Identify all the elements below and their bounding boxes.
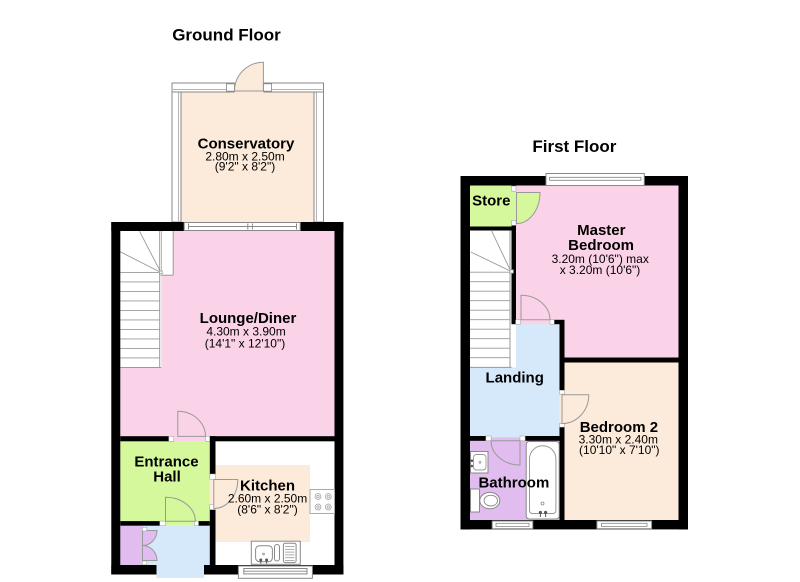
svg-text:(10'10" x 7'10"): (10'10" x 7'10") [579,443,659,457]
svg-text:(14'1" x 12'10"): (14'1" x 12'10") [205,336,285,350]
svg-text:First Floor: First Floor [532,137,616,156]
svg-text:(9'2" x 8'2"): (9'2" x 8'2") [215,160,275,174]
svg-text:Landing: Landing [486,369,544,386]
svg-text:Hall: Hall [153,469,181,486]
svg-text:x 3.20m (10'6"): x 3.20m (10'6") [560,263,641,277]
svg-text:Bathroom: Bathroom [478,475,549,492]
svg-text:Ground Floor: Ground Floor [172,25,281,44]
svg-text:Store: Store [472,193,510,210]
svg-text:(8'6" x 8'2"): (8'6" x 8'2") [237,502,297,516]
